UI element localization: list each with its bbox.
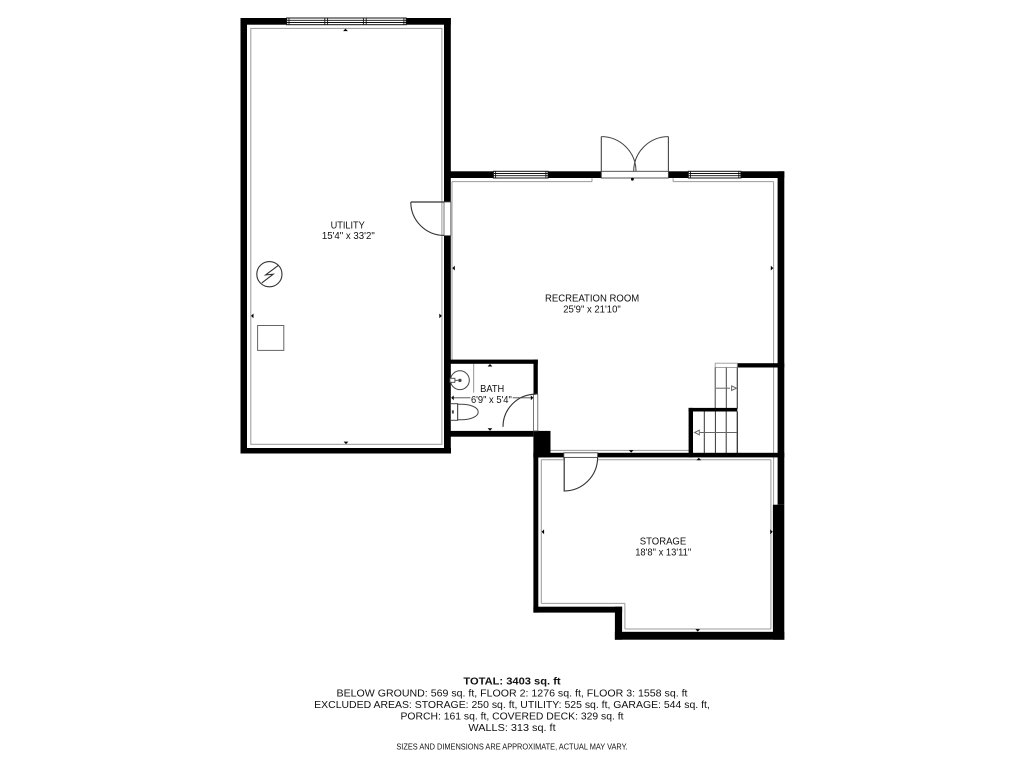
svg-text:EXCLUDED AREAS: STORAGE: 250 s: EXCLUDED AREAS: STORAGE: 250 sq. ft, UTI… [314, 700, 710, 711]
svg-text:TOTAL: 3403 sq. ft: TOTAL: 3403 sq. ft [463, 676, 561, 687]
svg-text:WALLS: 313 sq. ft: WALLS: 313 sq. ft [468, 723, 555, 734]
svg-text:BELOW GROUND: 569 sq. ft, FLOO: BELOW GROUND: 569 sq. ft, FLOOR 2: 1276 … [337, 688, 688, 699]
svg-text:SIZES AND DIMENSIONS ARE APPRO: SIZES AND DIMENSIONS ARE APPROXIMATE, AC… [396, 741, 627, 751]
svg-text:6'9" x 5'4": 6'9" x 5'4" [471, 394, 512, 406]
svg-text:18'8" x 13'11": 18'8" x 13'11" [635, 546, 691, 558]
svg-text:25'9" x 21'10": 25'9" x 21'10" [563, 303, 621, 315]
svg-text:BATH: BATH [480, 383, 504, 395]
svg-text:15'4" x 33'2": 15'4" x 33'2" [322, 230, 375, 242]
svg-text:PORCH: 161 sq. ft, COVERED DEC: PORCH: 161 sq. ft, COVERED DECK: 329 sq.… [401, 712, 624, 723]
